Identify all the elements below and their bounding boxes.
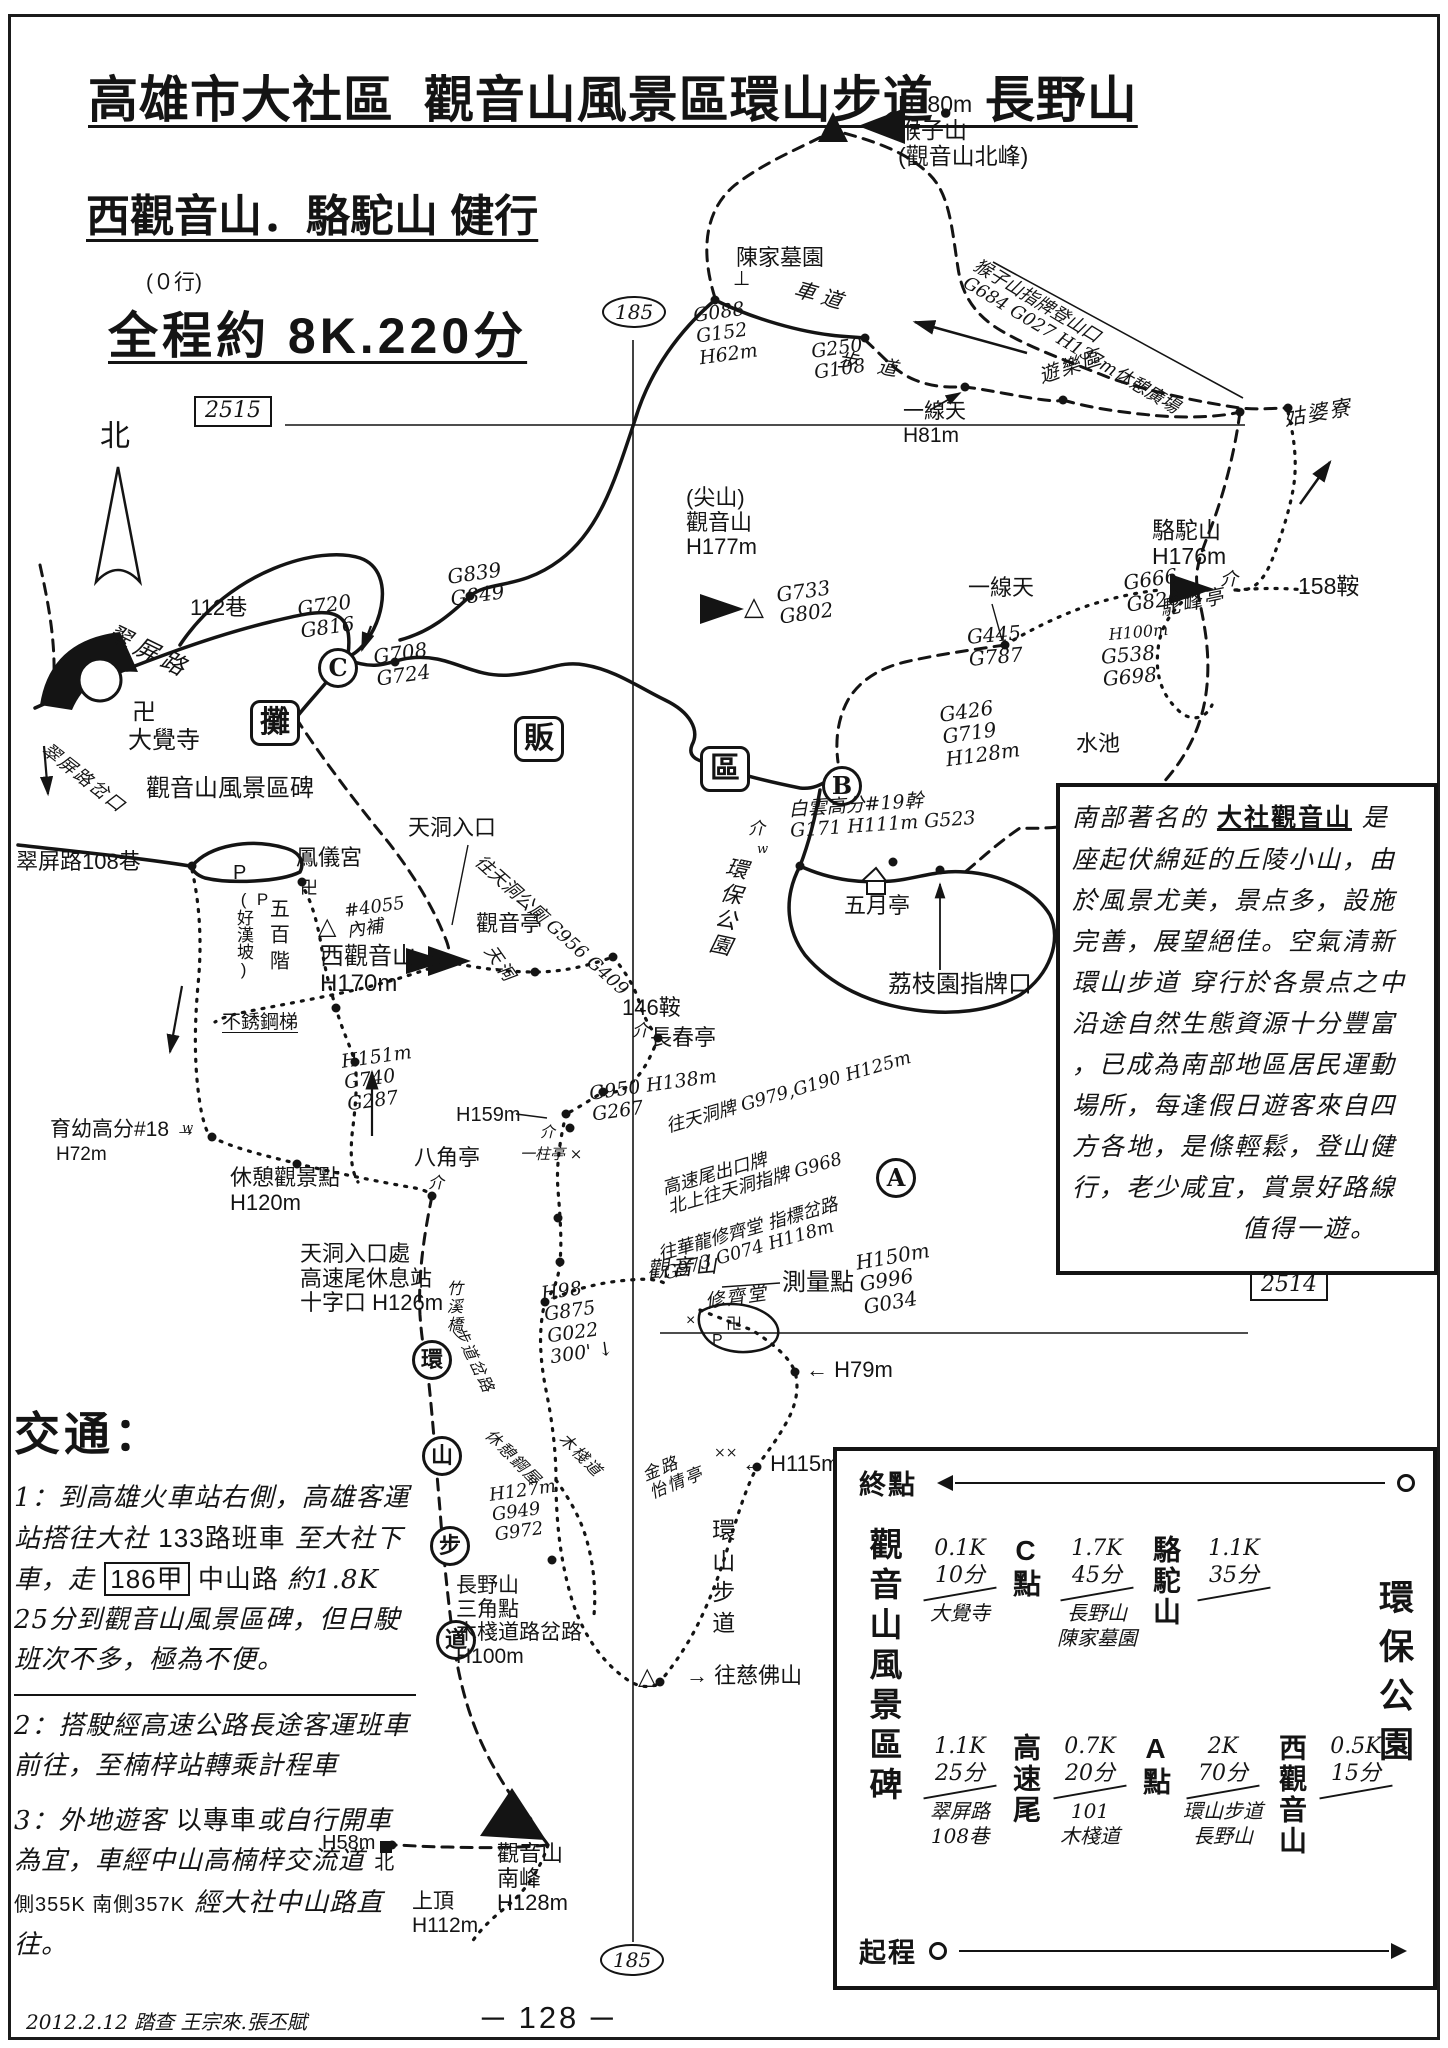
lane-112: 112巷 — [190, 596, 247, 621]
desc-tail: 是 — [1352, 803, 1389, 832]
gps-h159: H159m — [456, 1104, 520, 1126]
desc-keyword: 大社觀音山 — [1217, 804, 1352, 832]
pole-yuyou: 育幼高分#18 → — [50, 1118, 196, 1142]
route-185-top: 185 — [602, 296, 666, 328]
top-shangding: 上頂 H112m — [412, 1890, 478, 1937]
point-c: C — [318, 648, 358, 688]
pav-changchun: 長春亭 — [650, 1026, 716, 1051]
pav-octagon: 八角亭 — [414, 1146, 480, 1171]
gps-g538: G538 G698 — [1100, 641, 1158, 690]
traffic-item-3: 3：外地遊客 以專車或自行開車為宜，車經中山高楠梓交流道 北側355K 南側35… — [14, 1800, 416, 1965]
stairs-500: 五百階 — [266, 898, 288, 976]
gps-h115: ← H115m — [742, 1452, 839, 1477]
bus-route-133: 133路班車 — [158, 1523, 285, 1553]
pond-shuichi: 水池 — [1076, 732, 1120, 757]
sym-xx: ×× — [714, 1446, 737, 1462]
node-label: 駱駝山 — [1145, 1535, 1185, 1628]
walk-wood: 木棧道 — [555, 1430, 606, 1481]
node-label: C點 — [1005, 1535, 1045, 1600]
segment-distance: 1.1K 35分 — [1197, 1535, 1271, 1601]
via-label: 翠屏路 108巷 — [930, 1799, 990, 1849]
pav-may: 五月亭 — [844, 894, 910, 919]
route-185-bottom: 185 — [600, 1944, 664, 1976]
pav-yizhu: 一柱亭 × — [520, 1146, 582, 1163]
gap-yixiantian-1: 一線天 H81m — [903, 400, 966, 447]
description-line: 完善，展望絕佳。空氣清新 — [1072, 921, 1422, 962]
route-diagram-box: 終點 觀音山風景區碑 環保公園 0.1K 10分大覺寺C點1.7K 45分長野山… — [833, 1447, 1437, 1990]
via-label: 長野山 陳家墓園 — [1057, 1601, 1137, 1651]
distance-time: 0.1K 10分 — [934, 1535, 985, 1589]
note-4055: #4055 內補 — [343, 894, 409, 942]
gps-h72: H72m — [56, 1144, 107, 1165]
route-segment: 2K 70分環山步道 長野山西觀音山 — [1183, 1733, 1311, 1857]
distance-time: 1.1K 35分 — [1208, 1535, 1259, 1589]
end-line — [955, 1482, 1385, 1484]
point-a: A — [876, 1158, 916, 1198]
zhongshan-road: 中山路 — [190, 1564, 287, 1594]
description-last-line: 值得一遊。 — [1072, 1208, 1422, 1249]
traffic-item-2: 2：搭駛經高速公路長途客運班車前往，至楠梓站轉乘計程車 — [14, 1706, 416, 1786]
tri-cifo: △ — [638, 1664, 656, 1691]
park-p-2: P — [712, 1332, 723, 1350]
road-chedao: 車 道 — [792, 278, 845, 314]
ring-huan: 環 — [412, 1340, 452, 1380]
stall-fan: 販 — [514, 716, 564, 762]
route-segment: 1.1K 25分翠屏路 108巷高速尾 — [923, 1733, 1045, 1849]
page-number: ─ 128 ─ — [482, 2000, 616, 2036]
segment-distance: 1.7K 45分長野山 陳家墓園 — [1057, 1535, 1137, 1651]
gps-g708: G708 G724 — [372, 638, 432, 690]
trailhead-houzishan: 猴子山指牌登山口 G684 G027 H137m休憩廣場 — [959, 256, 1192, 418]
road-186a-badge: 186甲 — [104, 1562, 189, 1596]
gps-g088: G088 G152 H62m — [692, 298, 759, 369]
stairs-steel: 不銹鋼梯 — [222, 1012, 298, 1033]
fork-budao: 步道岔路 — [450, 1324, 498, 1397]
peak-south: 觀音山 南峰 H128m — [497, 1842, 568, 1916]
temple-fengyi: 鳳儀宮 — [296, 846, 362, 871]
start-row: 起程 — [859, 1931, 1415, 1970]
route-segment: 0.7K 20分101 木棧道A點 — [1053, 1733, 1175, 1849]
description-lines: 座起伏綿延的丘陵小山，由於風景尤美，景点多，設施完善，展望絕佳。空氣清新環山步道… — [1072, 839, 1422, 1208]
peak-jianshan: (尖山) 觀音山 H177m — [686, 486, 757, 560]
via-label: 大覺寺 — [930, 1601, 990, 1626]
tomb-chenjia: 陳家墓園 — [736, 246, 824, 271]
desc-lead: 南部著名的 — [1072, 803, 1217, 832]
scrib-tiandong: 天洞 — [479, 942, 518, 986]
fork-cuiping: 翠屏路岔口 — [38, 740, 129, 817]
temple-dajue: 大覺寺 — [128, 728, 200, 755]
description-line: 沿途自然生態資源十分豐富 — [1072, 1003, 1422, 1044]
pav-jinlu: 金路 怡情亭 — [640, 1447, 707, 1504]
sym-w-1: w — [757, 843, 768, 858]
description-line: 方各地，是條輕鬆，登山健 — [1072, 1126, 1422, 1167]
sym-jie-1: 介 — [748, 820, 765, 839]
diagram-row-2: 1.1K 25分翠屏路 108巷高速尾0.7K 20分101 木棧道A點2K 7… — [923, 1733, 1393, 1857]
to-cifoshan: → 往慈佛山 — [686, 1664, 802, 1689]
scrib-guanyinshan: 觀音山 — [646, 1254, 720, 1285]
nagano-tri: 長野山 三角點 木棧道路岔路 H100m — [456, 1574, 582, 1668]
saddle-146: 146鞍 — [622, 996, 681, 1021]
gps-h79: ← H79m — [806, 1358, 893, 1383]
tri-jianshan: △ — [744, 592, 764, 621]
via-label: 環山步道 長野山 — [1183, 1799, 1263, 1849]
traffic-heading: 交通： — [14, 1398, 416, 1464]
distance-time: 2K 70分 — [1198, 1733, 1248, 1787]
diagram-row-1: 0.1K 10分大覺寺C點1.7K 45分長野山 陳家墓園駱駝山1.1K 35分 — [923, 1535, 1373, 1651]
gps-g426: G426 G719 H128m — [938, 694, 1021, 771]
hall-xiuqitang: 修齊堂 — [704, 1283, 769, 1313]
peak-luotuo: 駱駝山 H176m — [1152, 518, 1226, 570]
survey-point: 測量點 — [782, 1270, 854, 1297]
entr-tiandong: 天洞入口 — [408, 816, 496, 841]
stall-qu: 區 — [700, 746, 750, 792]
ring-bu: 步 — [430, 1526, 470, 1566]
description-line: 南部著名的 大社觀音山 是 — [1072, 797, 1422, 839]
segment-distance: 0.1K 10分大覺寺 — [923, 1535, 997, 1626]
peak-houzishan-note: H180m 猴子山 (觀音山北峰) — [898, 92, 1028, 169]
description-line: ，已成為南部地區居民運動 — [1072, 1044, 1422, 1085]
stone-scenic: 觀音山風景區碑 — [146, 776, 314, 803]
gps-g839: G839 G849 — [446, 558, 506, 610]
sym-w-2: w — [182, 1122, 193, 1137]
survey-note: 2012.2.12 踏查 王宗來.張丕賦 — [26, 2006, 307, 2035]
segment-distance: 0.7K 20分101 木棧道 — [1053, 1733, 1127, 1849]
distance-time: 0.5K 15分 — [1330, 1733, 1381, 1787]
node-label: A點 — [1135, 1733, 1175, 1798]
start-circle-icon — [929, 1942, 947, 1960]
gps-g720: G720 G816 — [296, 590, 356, 642]
stall-tan: 攤 — [250, 700, 300, 746]
sign-lychee: 荔枝園指牌口 — [888, 972, 1032, 999]
end-label: 終點 — [859, 1463, 917, 1502]
route-segment: 1.7K 45分長野山 陳家墓園駱駝山 — [1057, 1535, 1185, 1651]
lane-108: 翠屏路108巷 — [16, 850, 141, 875]
gps-h127: H127m G949 G972 — [488, 1477, 563, 1546]
tri-xiguanyin: △ — [318, 914, 336, 941]
route-segment: 0.5K 15分 — [1319, 1733, 1393, 1799]
distance-time: 1.1K 25分 — [934, 1733, 985, 1787]
distance-time: 1.7K 45分 — [1071, 1535, 1122, 1589]
gps-h98: H98 G875 G022 300' ↓ — [540, 1275, 615, 1368]
traffic-divider — [14, 1694, 416, 1696]
gap-yixiantian-2: 一線天 — [968, 576, 1034, 601]
start-label: 起程 — [859, 1931, 917, 1970]
arrow-left-icon — [929, 1475, 953, 1491]
arrow-right-icon — [1391, 1943, 1415, 1959]
segment-distance: 1.1K 25分翠屏路 108巷 — [923, 1733, 997, 1849]
grid-2515: 2515 — [194, 396, 272, 427]
start-line — [959, 1950, 1389, 1952]
sym-swastika-2: 卍 — [300, 878, 318, 898]
sym-jie-3: 介 — [1220, 570, 1238, 590]
description-line: 環山步道 穿行於各景点之中 — [1072, 962, 1422, 1003]
sym-swastika-3: 卍 — [726, 1316, 742, 1334]
end-row: 終點 — [859, 1463, 1415, 1502]
saddle-158: 158鞍 — [1298, 574, 1359, 600]
segment-distance: 0.5K 15分 — [1319, 1733, 1393, 1799]
traffic-item-1: 1：到高雄火車站右側，高雄客運站搭往大社 133路班車 至大社下車，走 186甲… — [14, 1478, 416, 1680]
description-line: 場所，每逢假日遊客來自四 — [1072, 1085, 1422, 1126]
charter-car: 以專車 — [176, 1805, 257, 1835]
sym-jie-2: 介 — [632, 1022, 649, 1041]
pole-baiyun: 白雲高分#19幹 G171 H111m G523 — [788, 787, 976, 842]
node-label: 高速尾 — [1005, 1733, 1045, 1826]
ring-shan: 山 — [422, 1436, 462, 1476]
description-line: 座起伏綿延的丘陵小山，由 — [1072, 839, 1422, 880]
description-line: 行，老少咸宜，賞景好路線 — [1072, 1167, 1422, 1208]
peak-xiguanyin: 西觀音山 H170m — [320, 944, 416, 998]
gps-g733: G733 G802 — [775, 576, 835, 628]
node-label: 西觀音山 — [1271, 1733, 1311, 1857]
trail-ring-south: 環山步道 — [708, 1518, 734, 1642]
distance-time: 0.7K 20分 — [1064, 1733, 1115, 1787]
traffic-section: 交通： 1：到高雄火車站右側，高雄客運站搭往大社 133路班車 至大社下車，走 … — [14, 1398, 416, 1979]
place-gupoliao: 姑婆寮 — [1282, 396, 1354, 431]
route-segment: 1.1K 35分 — [1197, 1535, 1271, 1601]
description-box: 南部著名的 大社觀音山 是 座起伏綿延的丘陵小山，由於風景尤美，景点多，設施完善… — [1056, 783, 1438, 1275]
temple-swastika: 卍 — [132, 700, 156, 727]
gps-h100-right: H100m — [1108, 621, 1169, 644]
traffic-3-text: 3：外地遊客 — [14, 1806, 176, 1836]
gps-g445: G445 G787 — [966, 621, 1024, 670]
via-label: 101 木棧道 — [1060, 1799, 1120, 1849]
tomb-mark: ⊥ — [733, 268, 750, 290]
park-p: P — [233, 862, 246, 884]
sym-jie-4: 介 — [428, 1174, 444, 1192]
road-cuiping: 翠屏路 — [102, 620, 195, 684]
park-huanbao-road: 環保公園 — [702, 854, 748, 961]
diagram-left-label: 觀音山風景區碑 — [859, 1527, 907, 1935]
rest-tiandong: 天洞入口處 高速尾休息站 十字口 H126m — [300, 1242, 443, 1316]
sym-jie-5: 介 — [540, 1124, 555, 1141]
sym-x-1: × — [686, 1312, 695, 1330]
description-line: 於風景尤美，景点多，設施 — [1072, 880, 1422, 921]
north-label: 北 — [100, 420, 130, 454]
route-segment: 0.1K 10分大覺寺C點 — [923, 1535, 1045, 1626]
gps-h150: H150m G996 G034 — [854, 1239, 939, 1318]
gps-h151: H151m G740 G287 — [340, 1042, 419, 1115]
end-circle-icon — [1397, 1474, 1415, 1492]
view-rest: 休憩觀景點 H120m — [230, 1166, 340, 1215]
segment-distance: 2K 70分環山步道 長野山 — [1183, 1733, 1263, 1849]
